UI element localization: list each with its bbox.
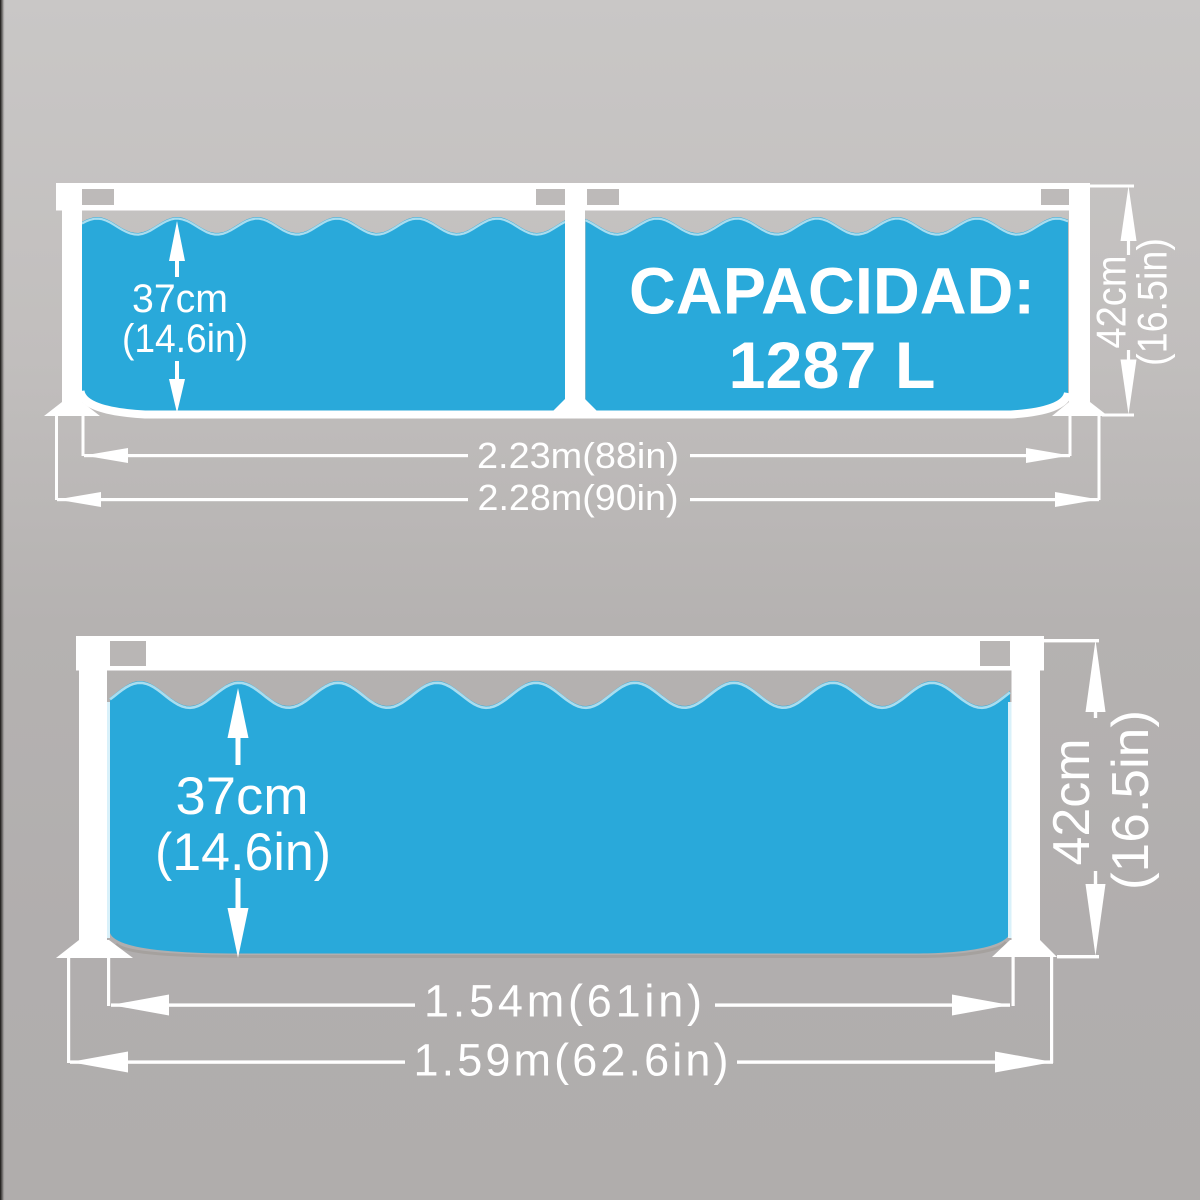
- svg-text:42cm: 42cm: [1043, 739, 1101, 866]
- svg-text:2.28m(90in): 2.28m(90in): [478, 477, 679, 518]
- svg-text:37cm: 37cm: [132, 277, 228, 321]
- svg-text:(16.5in): (16.5in): [1129, 238, 1176, 366]
- svg-text:2.23m(88in): 2.23m(88in): [477, 435, 679, 476]
- svg-text:(16.5in): (16.5in): [1102, 710, 1160, 890]
- svg-text:(14.6in): (14.6in): [122, 317, 248, 361]
- svg-text:1287 L: 1287 L: [729, 328, 936, 402]
- svg-text:42cm: 42cm: [1088, 256, 1135, 349]
- svg-text:(14.6in): (14.6in): [155, 823, 331, 882]
- svg-text:CAPACIDAD:: CAPACIDAD:: [629, 254, 1035, 328]
- svg-text:37cm: 37cm: [176, 767, 309, 826]
